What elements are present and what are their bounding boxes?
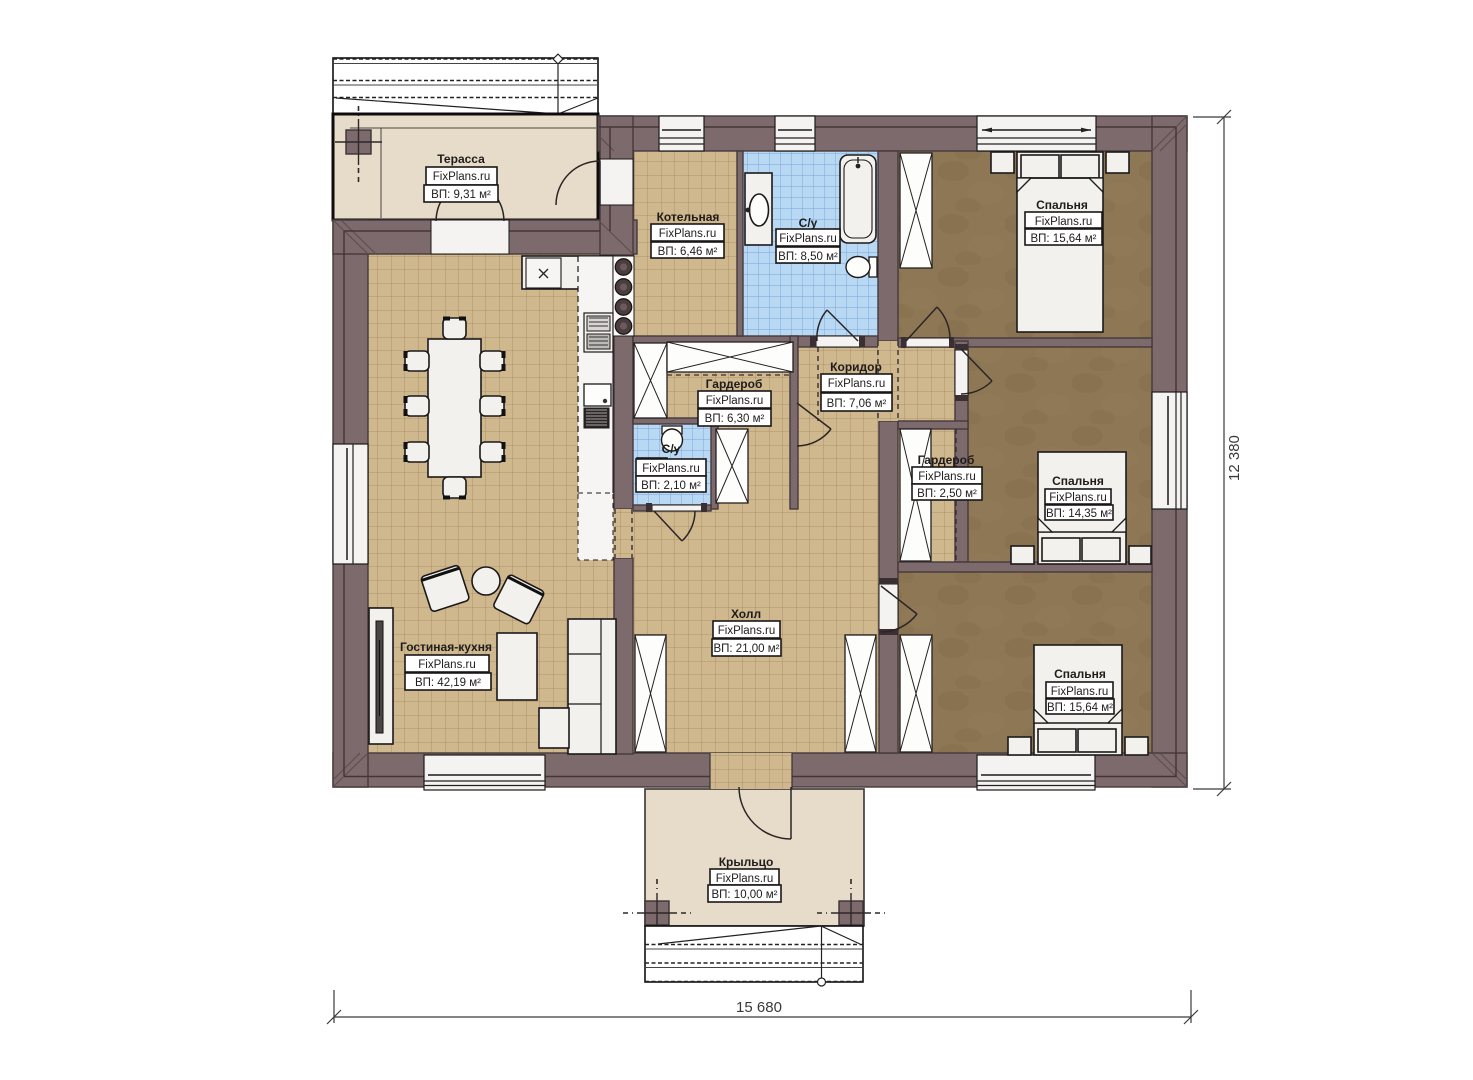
svg-text:FixPlans.ru: FixPlans.ru (828, 378, 886, 390)
svg-text:FixPlans.ru: FixPlans.ru (779, 233, 837, 245)
svg-text:С/у: С/у (799, 216, 818, 230)
svg-text:FixPlans.ru: FixPlans.ru (418, 659, 476, 671)
svg-text:ВП: 42,19 м²: ВП: 42,19 м² (415, 677, 481, 689)
svg-text:Гостиная-кухня: Гостиная-кухня (400, 640, 492, 654)
svg-text:Коридор: Коридор (830, 360, 882, 374)
svg-text:Котельная: Котельная (657, 210, 720, 224)
svg-text:12 380: 12 380 (1226, 435, 1243, 481)
svg-text:ВП: 6,30 м²: ВП: 6,30 м² (705, 413, 765, 425)
svg-text:ВП: 8,50 м²: ВП: 8,50 м² (778, 251, 838, 263)
svg-text:ВП: 21,00 м²: ВП: 21,00 м² (713, 643, 779, 655)
svg-text:FixPlans.ru: FixPlans.ru (642, 463, 700, 475)
svg-text:Холл: Холл (731, 607, 761, 621)
svg-text:ВП: 6,46 м²: ВП: 6,46 м² (658, 246, 718, 258)
svg-text:ВП: 9,31 м²: ВП: 9,31 м² (431, 189, 491, 201)
svg-text:FixPlans.ru: FixPlans.ru (1035, 216, 1093, 228)
svg-text:ВП: 14,35 м²: ВП: 14,35 м² (1046, 508, 1112, 520)
svg-text:ВП: 10,00 м²: ВП: 10,00 м² (711, 889, 777, 901)
svg-text:Спальня: Спальня (1054, 667, 1106, 681)
svg-text:Спальня: Спальня (1052, 474, 1104, 488)
svg-text:FixPlans.ru: FixPlans.ru (433, 171, 491, 183)
svg-text:FixPlans.ru: FixPlans.ru (1051, 686, 1109, 698)
svg-text:Крыльцо: Крыльцо (719, 855, 774, 869)
svg-text:ВП: 2,10 м²: ВП: 2,10 м² (641, 480, 701, 492)
svg-text:15 680: 15 680 (736, 999, 782, 1016)
svg-text:ВП: 15,64 м²: ВП: 15,64 м² (1030, 233, 1096, 245)
svg-text:Спальня: Спальня (1036, 198, 1088, 212)
svg-text:FixPlans.ru: FixPlans.ru (718, 625, 776, 637)
svg-text:FixPlans.ru: FixPlans.ru (659, 228, 717, 240)
svg-text:FixPlans.ru: FixPlans.ru (1049, 492, 1107, 504)
svg-text:Терасса: Терасса (437, 152, 485, 166)
svg-text:Гардероб: Гардероб (918, 453, 975, 467)
svg-text:ВП: 15,64 м²: ВП: 15,64 м² (1047, 702, 1113, 714)
svg-text:FixPlans.ru: FixPlans.ru (716, 873, 774, 885)
svg-text:Гардероб: Гардероб (706, 377, 763, 391)
svg-text:С/у: С/у (662, 442, 681, 456)
svg-text:FixPlans.ru: FixPlans.ru (706, 395, 764, 407)
svg-text:ВП: 2,50 м²: ВП: 2,50 м² (917, 488, 977, 500)
svg-text:FixPlans.ru: FixPlans.ru (918, 471, 976, 483)
svg-text:ВП: 7,06 м²: ВП: 7,06 м² (827, 398, 887, 410)
